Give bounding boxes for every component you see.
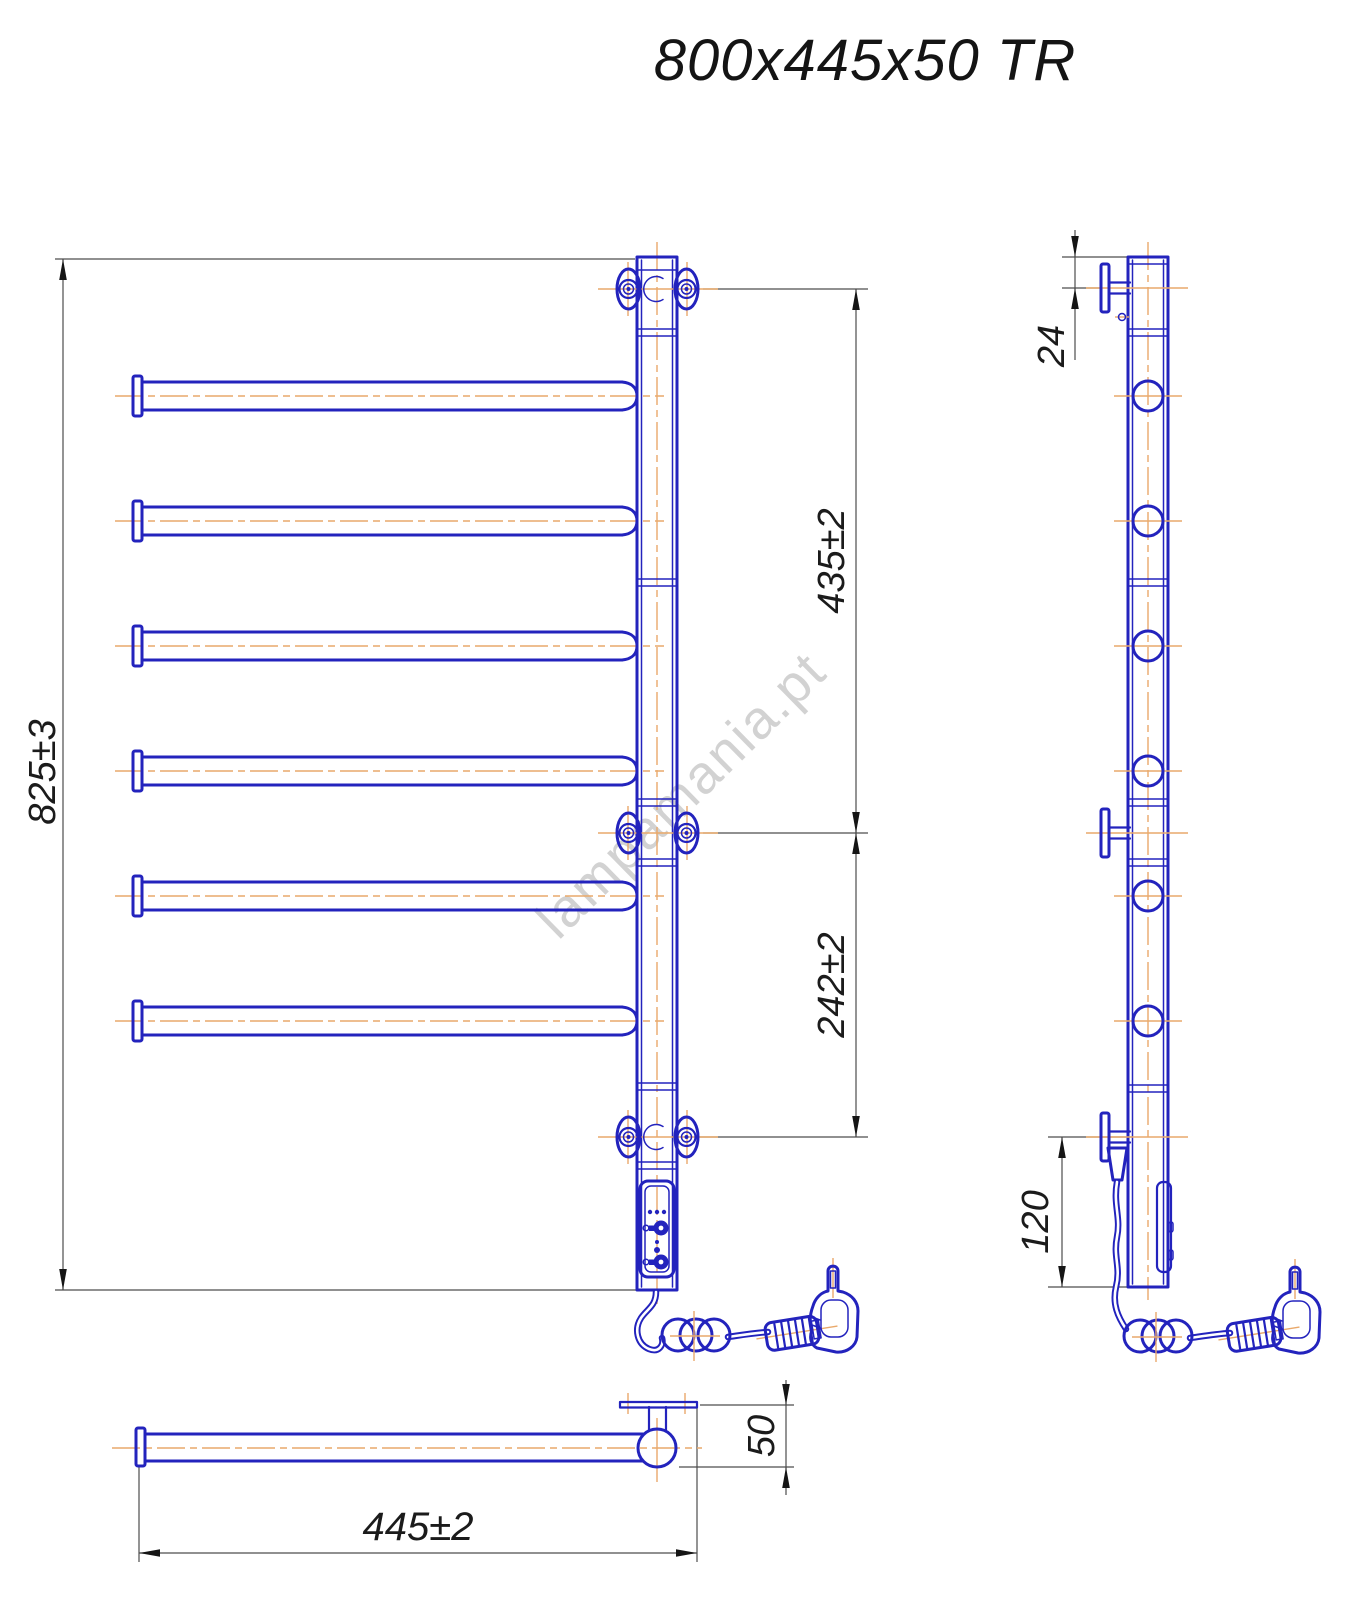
drawing-title: 800x445x50 TR xyxy=(654,28,1076,93)
drawing-sheet: lampamania.pt 800x445x50 TR 825±3 435±2 … xyxy=(0,0,1370,1600)
dimension-depth: 50 xyxy=(679,1380,794,1495)
side-bracket-middle xyxy=(1086,809,1188,857)
side-bracket-bottom xyxy=(1086,1113,1188,1161)
bottom-view xyxy=(112,1393,702,1482)
front-bracket-bottom xyxy=(598,1110,718,1164)
dim-label-width: 445±2 xyxy=(363,1505,474,1549)
control-button-upper xyxy=(643,1221,668,1236)
technical-drawing-canvas: lampamania.pt 800x445x50 TR 825±3 435±2 … xyxy=(0,0,1370,1600)
dimension-top-offset: 24 xyxy=(1031,230,1128,368)
indicator-led xyxy=(655,1240,659,1244)
dim-label-depth: 50 xyxy=(741,1415,783,1457)
side-view xyxy=(1086,242,1320,1362)
indicator-led xyxy=(662,1210,666,1214)
towel-bar-3 xyxy=(115,626,664,666)
towel-bar-2 xyxy=(115,501,664,541)
front-view xyxy=(115,242,858,1361)
dimension-width: 445±2 xyxy=(139,1408,697,1562)
dimension-lower-span: 242±2 xyxy=(700,833,868,1137)
towel-bar-6 xyxy=(115,1001,664,1041)
side-power-cord xyxy=(1108,1148,1320,1362)
front-power-cord xyxy=(637,1258,858,1361)
dim-label-lower-span: 242±2 xyxy=(811,932,853,1038)
indicator-led xyxy=(655,1210,659,1214)
dim-label-bottom-offset: 120 xyxy=(1015,1190,1057,1253)
watermark-text: lampamania.pt xyxy=(525,641,838,950)
towel-bar-1 xyxy=(115,376,664,416)
bottom-bar xyxy=(136,1428,644,1466)
dim-label-top-offset: 24 xyxy=(1031,325,1073,368)
strain-relief-cone xyxy=(1108,1148,1127,1180)
indicator-led xyxy=(648,1210,652,1214)
towel-bar-5 xyxy=(115,876,664,916)
side-control-profile xyxy=(1157,1182,1173,1272)
indicator-led xyxy=(654,1247,660,1253)
dim-label-upper-span: 435±2 xyxy=(811,508,853,613)
side-plug-assembly xyxy=(1124,1259,1320,1362)
dim-label-overall-height: 825±3 xyxy=(22,719,64,824)
dimension-overall-height: 825±3 xyxy=(22,259,640,1290)
side-bracket-top xyxy=(1086,264,1188,312)
towel-bar-4 xyxy=(115,751,664,791)
control-button-lower xyxy=(643,1255,668,1270)
front-plug-assembly xyxy=(662,1258,858,1361)
